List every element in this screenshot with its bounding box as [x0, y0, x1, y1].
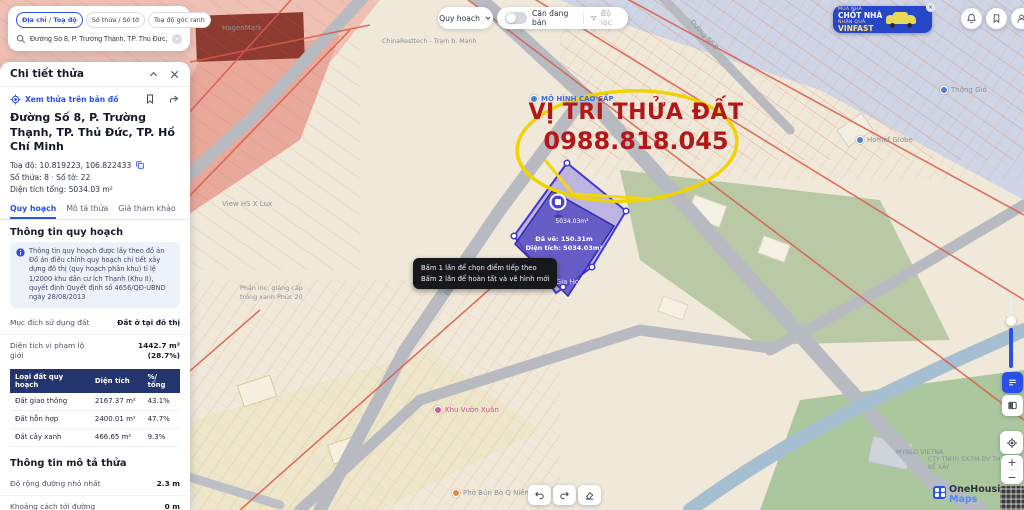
- zoom-in-button[interactable]: +: [1001, 455, 1023, 469]
- clear-search-icon[interactable]: ×: [172, 34, 182, 44]
- vinfast-ad-banner[interactable]: MUA NHÀ CHỐT NHÀ NHẬN QUÀ VINFAST ×: [833, 6, 932, 33]
- locate-icon: [1006, 437, 1018, 449]
- parcel-area-label: 5034.03m²: [555, 218, 589, 225]
- target-icon: [10, 94, 21, 105]
- qr-code: [1000, 486, 1024, 510]
- map-label: Phần lnc: giảng cấp trồng xanh Phúc 20: [240, 284, 320, 302]
- cell: 43.1%: [143, 393, 180, 411]
- draw-toolbar: [528, 485, 601, 505]
- redo-icon: [559, 490, 570, 501]
- undo-button[interactable]: [528, 485, 551, 505]
- col-header: %/ tổng: [143, 369, 180, 393]
- row-label: Độ rộng đường nhỏ nhất: [10, 479, 101, 489]
- cell: 2400.01 m²: [90, 410, 143, 428]
- close-icon[interactable]: [169, 69, 180, 80]
- layer-dropdown-label: Quy hoạch: [439, 14, 480, 23]
- poi-icon: [434, 406, 442, 414]
- layer-dropdown[interactable]: Quy hoạch: [438, 7, 493, 29]
- copy-icon[interactable]: [135, 160, 145, 170]
- map-label: View HS X Lux: [222, 200, 272, 208]
- row-label: Diện tích vi phạm lộ giới: [10, 341, 97, 361]
- cell: Đất giao thông: [10, 393, 90, 411]
- bookmark-icon[interactable]: [144, 93, 156, 105]
- map-filter-bar: Căn đang bán Bộ lọc: [497, 7, 628, 29]
- legend-button[interactable]: [1002, 372, 1023, 393]
- cell: Đất cây xanh: [10, 428, 90, 446]
- tab-planning[interactable]: Quy hoạch: [10, 204, 56, 219]
- draw-tooltip-line2: Bấm 2 lần để hoàn tất và vẽ hình mới: [421, 274, 549, 285]
- eraser-icon: [584, 490, 595, 501]
- ad-line2-big: VINFAST: [838, 25, 882, 33]
- slider-handle[interactable]: [1006, 316, 1016, 326]
- panel-title: Chi tiết thửa: [10, 68, 84, 80]
- person-icon: [1016, 13, 1024, 24]
- table-row: Đất hỗn hợp 2400.01 m² 47.7%: [10, 410, 180, 428]
- notifications-button[interactable]: [961, 8, 982, 29]
- table-row: Đất giao thông 2167.37 m² 43.1%: [10, 393, 180, 411]
- share-icon[interactable]: [168, 93, 180, 105]
- erase-shape-button[interactable]: [578, 485, 601, 505]
- listings-toggle-label: Căn đang bán: [532, 9, 576, 27]
- row-value: 2.3 m: [157, 479, 180, 489]
- info-icon: [16, 248, 25, 257]
- poi-icon: [856, 136, 864, 144]
- listings-toggle[interactable]: [505, 12, 527, 24]
- ad-close-icon[interactable]: ×: [926, 3, 935, 12]
- poi-icon: [940, 86, 948, 94]
- tab-address-coords[interactable]: Địa chỉ / Toạ độ: [16, 12, 83, 28]
- search-input[interactable]: [30, 36, 168, 43]
- app-window: 5034.03m² Đã vẽ: 150.31m Diện tích: 5034…: [0, 0, 1024, 510]
- planning-notice: Thông tin quy hoạch được lấy theo đồ án …: [10, 242, 180, 308]
- map-label: HagenMark: [222, 24, 262, 32]
- search-card: Địa chỉ / Toạ độ Số thửa / Số tờ Toạ độ …: [8, 6, 190, 51]
- land-type-table: Loại đất quy hoạch Diện tích %/ tổng Đất…: [10, 369, 180, 447]
- cell: 466.65 m²: [90, 428, 143, 446]
- tab-boundary-coords[interactable]: Toạ độ góc ranh: [148, 12, 211, 28]
- redo-button[interactable]: [553, 485, 576, 505]
- map-label: MYNLO VIETNA.: [896, 449, 945, 456]
- col-header: Loại đất quy hoạch: [10, 369, 90, 393]
- zoom-out-button[interactable]: −: [1001, 470, 1023, 484]
- search-icon: [16, 34, 26, 44]
- zoom-control: + −: [1001, 455, 1023, 484]
- row-value: 1442.7 m² (28.7%): [105, 341, 180, 361]
- divider: [583, 12, 584, 24]
- draw-tooltip-line1: Bấm 1 lần để chọn điểm tiếp theo: [421, 263, 549, 274]
- parcel-detail-panel: Chi tiết thửa Xem thửa trên bản đồ Đường…: [0, 62, 190, 510]
- planning-notice-text: Thông tin quy hoạch được lấy theo đồ án …: [29, 247, 174, 303]
- row-value: 0 m: [165, 502, 180, 510]
- draw-length-label: Đã vẽ: 150.31m: [535, 235, 593, 243]
- search-mode-tabs: Địa chỉ / Toạ độ Số thửa / Số tờ Toạ độ …: [16, 12, 182, 28]
- split-view-button[interactable]: [1002, 395, 1023, 416]
- map-label: MÔ HÌNH CAO CẤP: [530, 95, 614, 103]
- row-value: Đất ở tại đô thị: [117, 318, 180, 328]
- parcel-coordinates: Toạ độ: 10.819223, 106.822433: [10, 161, 131, 170]
- draw-tooltip: Bấm 1 lần để chọn điểm tiếp theo Bấm 2 l…: [413, 258, 557, 289]
- planning-section-heading: Thông tin quy hoạch: [0, 220, 190, 242]
- tab-parcel-sheet[interactable]: Số thửa / Số tờ: [86, 12, 145, 28]
- description-section-heading: Thông tin mô tả thửa: [0, 451, 190, 473]
- view-on-map-link[interactable]: Xem thửa trên bản đồ: [25, 95, 140, 104]
- bookmark-icon: [991, 13, 1002, 24]
- collapse-icon[interactable]: [148, 69, 159, 80]
- row-label: Mục đích sử dụng đất: [10, 318, 89, 328]
- car-image: [886, 12, 916, 28]
- split-view-icon: [1007, 400, 1018, 411]
- cell: 2167.37 m²: [90, 393, 143, 411]
- cell: 47.7%: [143, 410, 180, 428]
- filter-icon: [590, 14, 597, 23]
- legend-icon: [1007, 377, 1018, 388]
- table-row: Đất cây xanh 466.65 m² 9.3%: [10, 428, 180, 446]
- undo-icon: [534, 490, 545, 501]
- map-label: Khu Vườn Xuân: [434, 406, 499, 414]
- bell-icon: [966, 13, 977, 24]
- onehousing-logo-icon: [933, 486, 946, 499]
- parcel-area-total: Diện tích tổng: 5034.03 m²: [10, 185, 113, 194]
- chevron-down-icon: [484, 14, 492, 22]
- map-label: Homef Globe: [856, 136, 913, 144]
- ad-line1-big: CHỐT NHÀ: [838, 12, 882, 20]
- poi-icon: [530, 95, 538, 103]
- map-opacity-slider[interactable]: [1009, 296, 1013, 370]
- row-label: Khoảng cách tới đường chính: [10, 502, 105, 510]
- tab-reference-price[interactable]: Giá tham khảo: [118, 204, 175, 219]
- parcel-address: Đường Số 8, P. Trường Thạnh, TP. Thủ Đức…: [0, 109, 190, 159]
- draw-area-label: Diện tích: 5034.03m²: [526, 244, 603, 252]
- col-header: Diện tích: [90, 369, 143, 393]
- map-label: Thông Gió: [940, 86, 987, 94]
- tab-description[interactable]: Mô tả thửa: [66, 204, 108, 219]
- saved-button[interactable]: [986, 8, 1007, 29]
- cell: 9.3%: [143, 428, 180, 446]
- filter-button[interactable]: Bộ lọc: [601, 9, 620, 27]
- panel-tabs: Quy hoạch Mô tả thửa Giá tham khảo: [0, 199, 190, 220]
- cell: Đất hỗn hợp: [10, 410, 90, 428]
- locate-button[interactable]: [1000, 431, 1023, 454]
- map-label: ChinaResttech - Trạm b. Manh: [382, 38, 477, 45]
- poi-icon: [452, 489, 460, 497]
- parcel-numbers: Số thửa: 8 · Số tờ: 22: [10, 173, 90, 182]
